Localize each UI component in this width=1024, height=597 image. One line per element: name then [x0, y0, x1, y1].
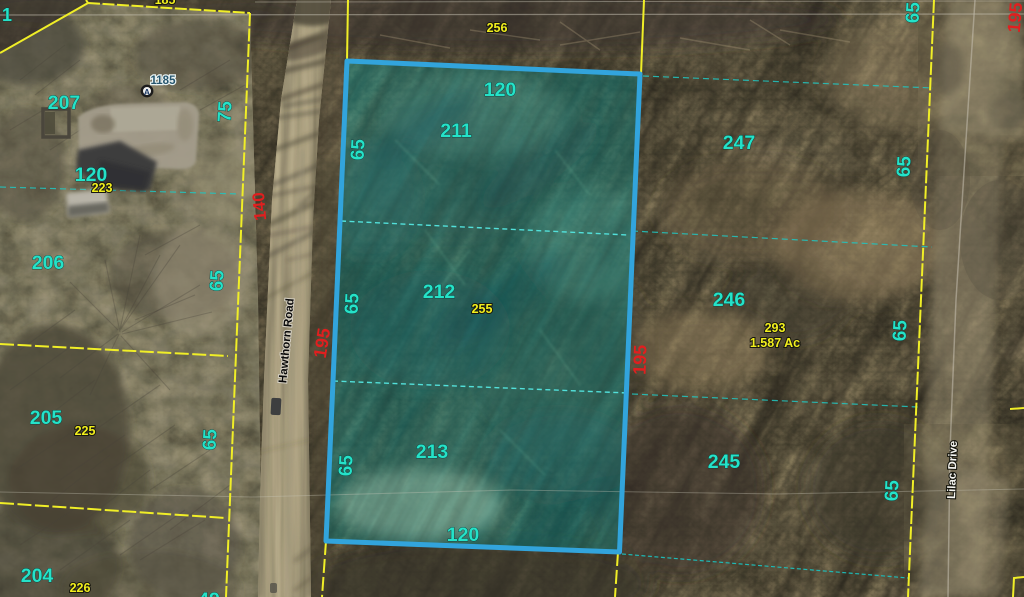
svg-text:65: 65	[893, 155, 915, 178]
svg-text:255: 255	[472, 302, 493, 316]
svg-text:1.587 Ac: 1.587 Ac	[750, 336, 800, 350]
svg-text:207: 207	[48, 92, 81, 114]
svg-text:A: A	[144, 87, 150, 97]
svg-text:206: 206	[32, 252, 65, 274]
svg-text:247: 247	[723, 132, 756, 154]
svg-text:1185: 1185	[151, 75, 177, 87]
svg-text:65: 65	[206, 269, 228, 292]
svg-text:65: 65	[881, 479, 903, 502]
svg-text:65: 65	[889, 319, 911, 342]
svg-text:65: 65	[347, 138, 369, 161]
svg-text:140: 140	[249, 192, 270, 222]
svg-text:1: 1	[2, 5, 12, 25]
svg-text:195: 195	[629, 344, 650, 375]
svg-text:65: 65	[335, 454, 357, 477]
svg-text:223: 223	[92, 181, 113, 195]
svg-text:205: 205	[30, 407, 63, 429]
svg-text:120: 120	[447, 524, 480, 546]
svg-text:65: 65	[199, 428, 221, 451]
svg-text:211: 211	[440, 120, 472, 142]
svg-text:195: 195	[310, 327, 334, 360]
svg-text:245: 245	[708, 451, 741, 473]
svg-text:65: 65	[341, 292, 363, 315]
svg-text:225: 225	[75, 424, 96, 438]
svg-text:293: 293	[765, 321, 786, 335]
svg-text:49: 49	[198, 589, 220, 597]
svg-text:226: 226	[70, 581, 91, 595]
svg-text:195: 195	[1004, 2, 1024, 34]
svg-text:185: 185	[155, 0, 176, 7]
svg-text:Hawthorn Road: Hawthorn Road	[277, 298, 296, 384]
svg-text:75: 75	[214, 100, 236, 123]
svg-text:212: 212	[423, 281, 456, 303]
svg-text:204: 204	[21, 565, 54, 587]
svg-text:246: 246	[713, 289, 746, 311]
svg-text:65: 65	[902, 1, 924, 24]
svg-text:120: 120	[484, 79, 517, 101]
svg-text:Lilac Drive: Lilac Drive	[946, 441, 960, 500]
svg-text:256: 256	[487, 21, 508, 35]
svg-text:213: 213	[416, 441, 449, 463]
